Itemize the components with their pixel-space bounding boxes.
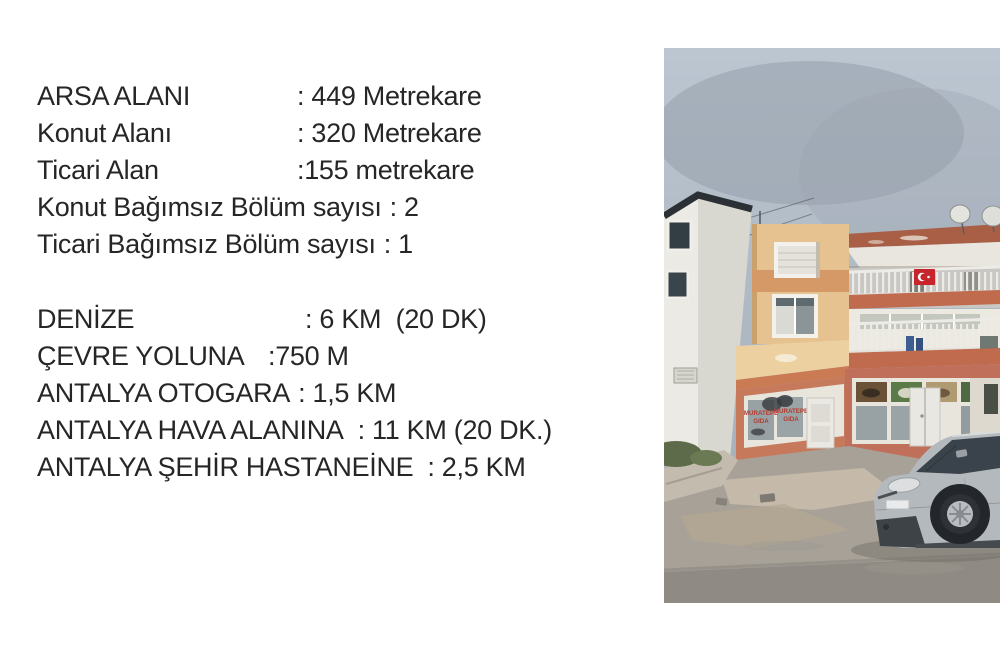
- front-wheel: [930, 484, 990, 544]
- fog-light: [883, 524, 889, 530]
- info-label: ANTALYA HAVA ALANINA: [37, 412, 344, 449]
- property-info-panel: ARSA ALANI : 449 Metrekare Konut Alanı :…: [37, 78, 552, 486]
- info-label: ANTALYA OTOGARA: [37, 375, 290, 412]
- license-plate: [886, 500, 909, 509]
- info-value: :750 M: [268, 338, 349, 375]
- info-value: : 2,5 KM: [427, 449, 525, 486]
- info-row: ANTALYA OTOGARA : 1,5 KM: [37, 375, 552, 412]
- info-value: : 1,5 KM: [298, 375, 396, 412]
- info-label: Ticari Alan: [37, 152, 289, 189]
- lower-balcony-railing: [847, 319, 1000, 353]
- info-value: : 1: [384, 226, 413, 263]
- info-row: ANTALYA ŞEHİR HASTANEİNE : 2,5 KM: [37, 449, 552, 486]
- shop-double-door: [910, 388, 940, 446]
- shop-door: [807, 398, 834, 448]
- info-row: ANTALYA HAVA ALANINA : 11 KM (20 DK.): [37, 412, 552, 449]
- info-label: ANTALYA ŞEHİR HASTANEİNE: [37, 449, 413, 486]
- ac-unit: [674, 368, 697, 383]
- info-label: Konut Bağımsız Bölüm sayısı: [37, 189, 382, 226]
- info-row: Konut Alanı : 320 Metrekare: [37, 115, 552, 152]
- left-building-window: [666, 270, 689, 299]
- window-reflection: [751, 429, 765, 436]
- turkish-flag: [914, 269, 935, 285]
- info-row: ARSA ALANI : 449 Metrekare: [37, 78, 552, 115]
- upper-window: [774, 242, 820, 278]
- info-label: Konut Alanı: [37, 115, 289, 152]
- info-row: DENİZE : 6 KM (20 DK): [37, 301, 552, 338]
- info-row: Ticari Bağımsız Bölüm sayısı : 1: [37, 226, 552, 263]
- block-spacer: [37, 263, 552, 301]
- info-row: Ticari Alan :155 metrekare: [37, 152, 552, 189]
- window-reflection: [777, 395, 793, 407]
- info-row: Konut Bağımsız Bölüm sayısı : 2: [37, 189, 552, 226]
- building-face: [752, 211, 849, 344]
- info-value: : 449 Metrekare: [297, 78, 482, 115]
- svg-text:MURATEPE: MURATEPE: [774, 408, 808, 415]
- info-row: ÇEVRE YOLUNA :750 M: [37, 338, 552, 375]
- lower-balcony: [847, 309, 1000, 353]
- svg-text:GIDA: GIDA: [783, 416, 799, 423]
- lower-window: [772, 294, 818, 338]
- info-label: ARSA ALANI: [37, 78, 289, 115]
- info-value: :155 metrekare: [297, 152, 474, 189]
- info-label: Ticari Bağımsız Bölüm sayısı: [37, 226, 376, 263]
- info-value: : 2: [390, 189, 419, 226]
- info-value: : 320 Metrekare: [297, 115, 482, 152]
- svg-text:GIDA: GIDA: [753, 418, 769, 425]
- info-value: : 11 KM (20 DK.): [358, 412, 552, 449]
- info-label: DENİZE: [37, 301, 297, 338]
- listing-slide: ARSA ALANI : 449 Metrekare Konut Alanı :…: [0, 0, 1000, 664]
- info-value: : 6 KM (20 DK): [305, 301, 487, 338]
- stone: [760, 493, 776, 503]
- side-window: [984, 384, 998, 414]
- left-building-window: [667, 220, 692, 251]
- property-photo: MURATEPE GIDA MURATEPE GIDA: [664, 48, 1000, 603]
- info-label: ÇEVRE YOLUNA: [37, 338, 260, 375]
